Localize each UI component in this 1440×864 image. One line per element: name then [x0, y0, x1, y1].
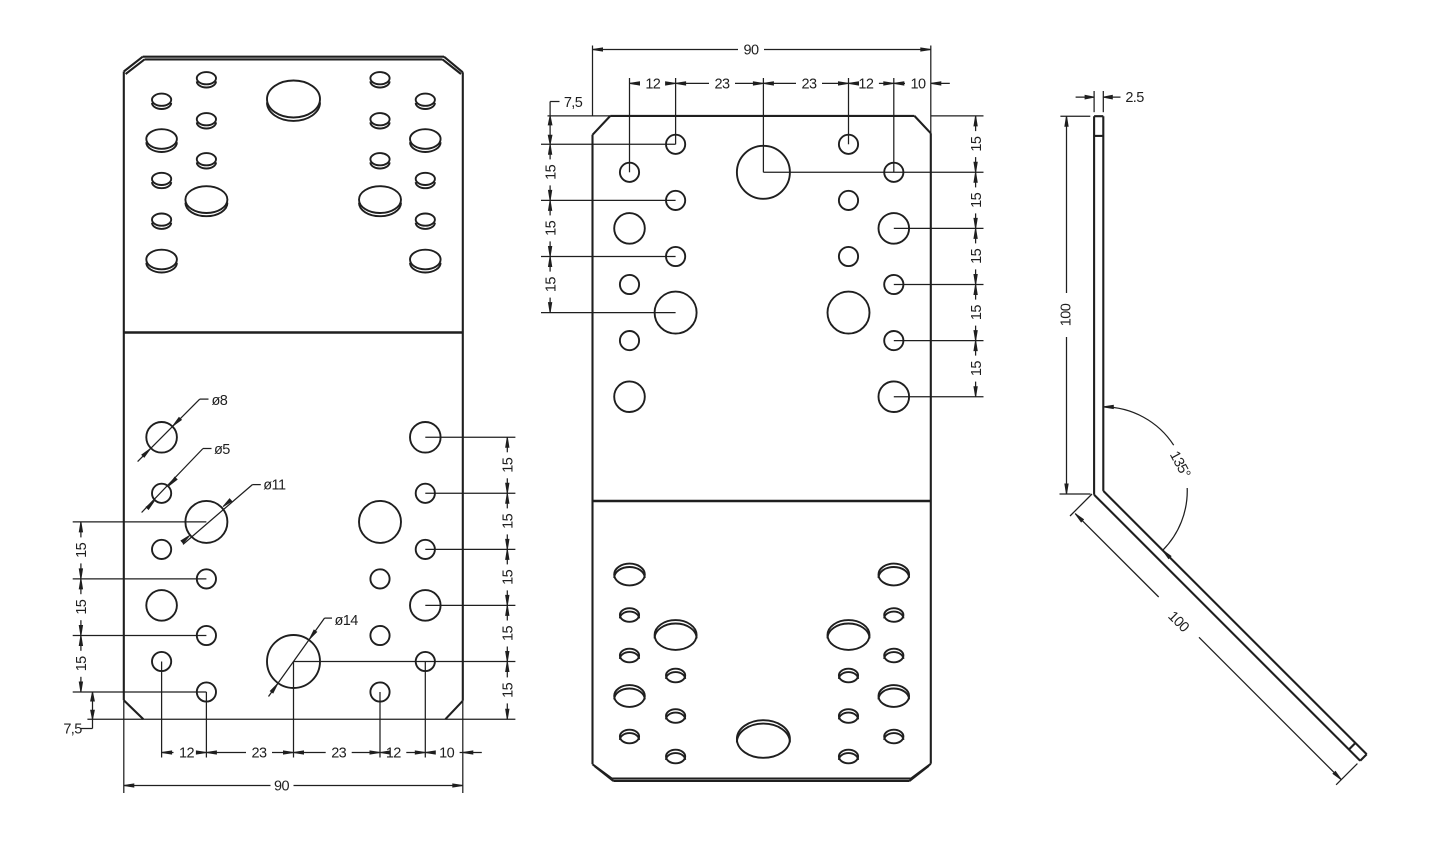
svg-text:15: 15 — [969, 305, 985, 320]
svg-text:15: 15 — [969, 192, 985, 207]
svg-text:15: 15 — [543, 220, 559, 235]
svg-text:7,5: 7,5 — [63, 722, 82, 738]
svg-text:12: 12 — [645, 77, 660, 93]
svg-text:100: 100 — [1059, 303, 1075, 326]
svg-text:10: 10 — [439, 746, 454, 762]
svg-text:23: 23 — [252, 746, 267, 762]
svg-text:90: 90 — [274, 779, 289, 795]
svg-text:7,5: 7,5 — [564, 95, 583, 111]
svg-text:15: 15 — [500, 682, 516, 697]
svg-text:90: 90 — [744, 43, 759, 59]
svg-text:15: 15 — [543, 277, 559, 292]
svg-text:10: 10 — [911, 77, 926, 93]
svg-text:15: 15 — [74, 656, 90, 671]
svg-text:15: 15 — [501, 626, 517, 641]
svg-text:15: 15 — [74, 599, 90, 614]
svg-text:12: 12 — [858, 77, 873, 93]
svg-text:15: 15 — [969, 136, 985, 151]
svg-text:15: 15 — [500, 569, 516, 584]
svg-text:ø8: ø8 — [212, 393, 228, 409]
svg-text:12: 12 — [179, 746, 194, 762]
svg-text:23: 23 — [715, 77, 730, 93]
svg-text:12: 12 — [386, 746, 401, 762]
svg-text:ø5: ø5 — [214, 442, 230, 458]
svg-text:15: 15 — [500, 513, 516, 528]
svg-text:15: 15 — [501, 457, 517, 472]
svg-text:ø14: ø14 — [335, 613, 359, 629]
svg-text:23: 23 — [802, 77, 817, 93]
svg-text:2.5: 2.5 — [1125, 90, 1144, 106]
svg-text:23: 23 — [331, 746, 346, 762]
svg-text:15: 15 — [543, 164, 559, 179]
svg-text:15: 15 — [74, 542, 90, 557]
svg-text:15: 15 — [969, 361, 985, 376]
svg-text:15: 15 — [969, 248, 985, 263]
svg-text:ø11: ø11 — [263, 478, 286, 494]
